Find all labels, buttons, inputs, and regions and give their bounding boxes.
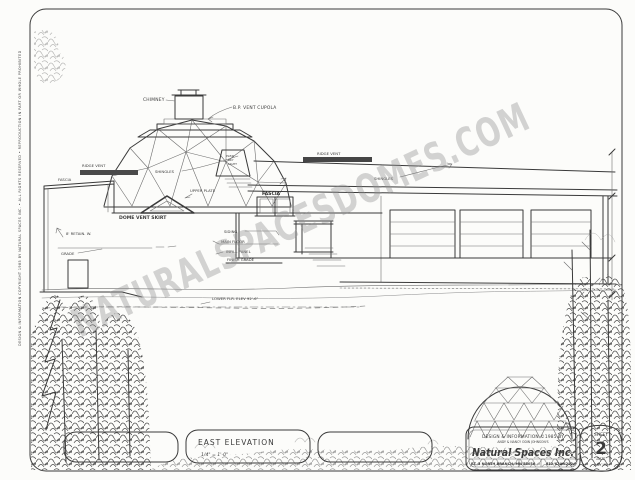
label-upper-plate: UPPER PLATE	[190, 188, 216, 193]
blueprint-sheet: DESIGN & INFORMATION COPYRIGHT 1985 BY N…	[0, 0, 635, 480]
corner-foliage-sketch	[34, 30, 66, 84]
drawing-scale: 1/4" = 1'-0"	[201, 452, 228, 458]
label-dome-vent-skirt: DOME VENT SKIRT	[119, 215, 167, 221]
company-phone: 612/674-4292	[546, 462, 574, 466]
label-shingles-dome: SHINGLES	[155, 169, 175, 174]
label-ridge-vent-right: RIDGE VENT	[317, 151, 341, 156]
sheet-date-value: JULY '85	[593, 463, 609, 467]
title-block-line1: DESIGN & INFORMATION ©1985 BY	[482, 433, 564, 440]
label-fascia-right: FASCIA	[262, 191, 281, 197]
drawing-title: EAST ELEVATION	[198, 438, 275, 447]
label-vent-cupola: B.P. VENT CUPOLA	[233, 105, 276, 111]
sheet-label: SHEET	[594, 432, 608, 437]
label-chimney: CHIMNEY	[143, 97, 165, 103]
label-lower-floor-elev: LOWER FLR. ELEV 92'-6"	[212, 296, 259, 301]
garage-doors	[390, 210, 591, 258]
label-grade: GRADE	[61, 251, 75, 256]
sheet-date-label: DATE	[597, 457, 607, 461]
label-skylight-3: LIGHT	[228, 162, 237, 166]
title-block-line2: ANDY & NANCY ODIN JOHNSON'S	[497, 440, 548, 444]
edge-copyright-text: DESIGN & INFORMATION COPYRIGHT 1985 BY N…	[18, 50, 22, 346]
elevation-drawing: DESIGN & INFORMATION COPYRIGHT 1985 BY N…	[0, 0, 635, 480]
label-retaining-wall: 8' RETAIN. W.	[66, 231, 91, 236]
company-address: RT. 3 NORTH BRANCH, MN	[471, 462, 522, 466]
sheet-number: 2	[595, 439, 607, 459]
label-fascia-left: FASCIA	[58, 177, 72, 182]
company-zip: 55056	[523, 462, 536, 466]
company-name: Natural Spaces Inc.	[472, 447, 574, 459]
label-ridge-vent-left: RIDGE VENT	[82, 163, 106, 168]
